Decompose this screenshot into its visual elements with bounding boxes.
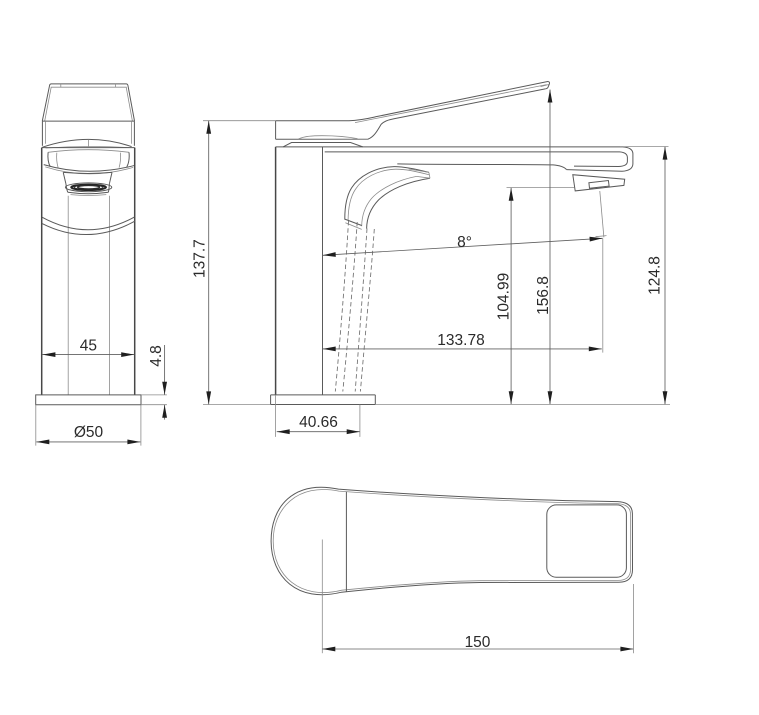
svg-text:156.8: 156.8	[535, 276, 552, 315]
svg-text:150: 150	[465, 634, 491, 651]
svg-text:40.66: 40.66	[299, 414, 338, 431]
svg-text:133.78: 133.78	[437, 332, 484, 349]
svg-text:Ø50: Ø50	[74, 424, 104, 441]
svg-text:8°: 8°	[457, 234, 472, 251]
svg-text:124.8: 124.8	[646, 256, 663, 295]
svg-text:137.7: 137.7	[192, 239, 209, 278]
svg-text:4.8: 4.8	[148, 345, 165, 367]
svg-text:104.99: 104.99	[496, 273, 513, 320]
svg-text:45: 45	[80, 337, 97, 354]
